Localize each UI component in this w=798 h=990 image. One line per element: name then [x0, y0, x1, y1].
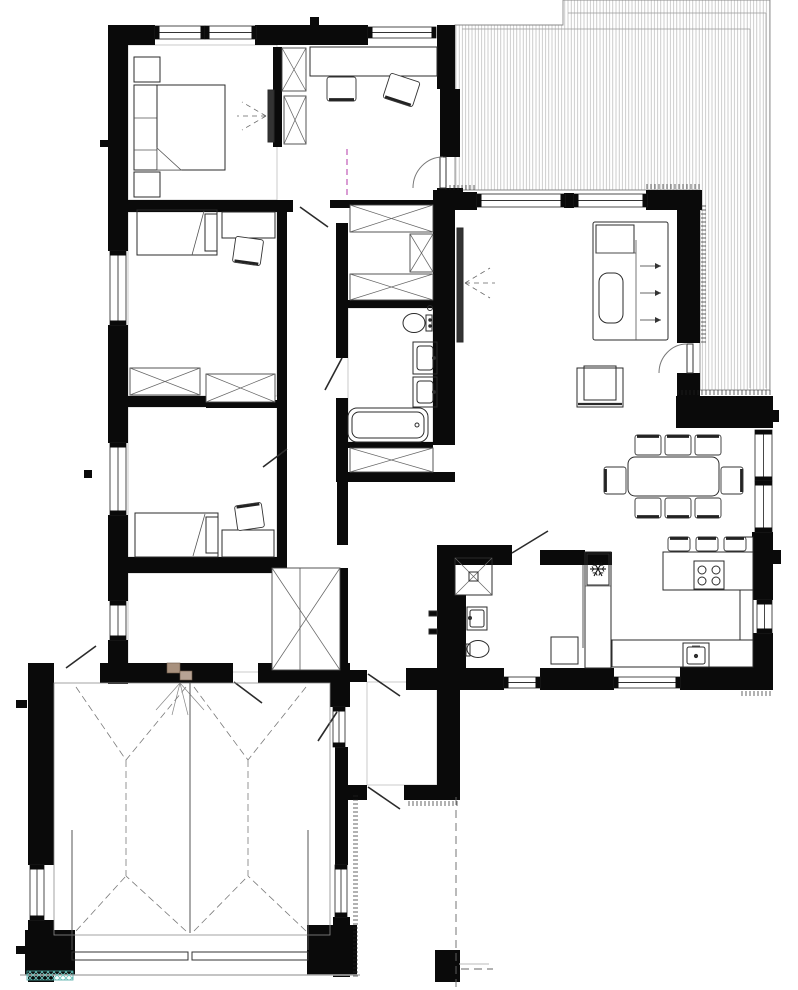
bathroom [417, 381, 433, 403]
toilet [403, 314, 425, 333]
window-jamb [335, 865, 347, 870]
dining-chair [695, 435, 721, 455]
door-leaf [234, 682, 262, 703]
window [205, 26, 256, 39]
wall [335, 747, 348, 865]
wall [28, 815, 54, 865]
bathroom [429, 325, 431, 327]
dining-chair [721, 467, 743, 494]
dining-chair [635, 435, 661, 455]
roof-hip [194, 876, 248, 931]
window-jamb [477, 194, 482, 207]
garage-door [72, 952, 188, 960]
door-leaf [512, 531, 548, 553]
bathroom [426, 315, 432, 331]
hall [272, 568, 340, 670]
door-leaf [368, 787, 400, 809]
desk [222, 530, 274, 557]
wall [108, 325, 128, 443]
bedroom-3-outline [128, 407, 277, 557]
tv-rays [465, 268, 490, 283]
window [335, 865, 347, 917]
tv-rays [242, 116, 266, 130]
wall [277, 472, 287, 573]
wall [336, 300, 437, 308]
bathroom-outline [348, 308, 433, 442]
living-room [457, 222, 668, 407]
wall [336, 398, 348, 460]
window-jamb [205, 26, 210, 39]
wall [540, 550, 585, 565]
window [477, 194, 565, 207]
wall [677, 205, 700, 343]
wall [336, 460, 348, 474]
tv-rays [242, 102, 266, 116]
dining-chair [695, 498, 721, 518]
living-room [655, 263, 661, 269]
bathroom [348, 306, 437, 443]
roof-hip [248, 876, 306, 931]
wall [337, 472, 348, 545]
island [663, 552, 753, 590]
wall [406, 668, 460, 690]
pillow [205, 214, 217, 251]
window-jamb [755, 477, 772, 482]
desk-chair [232, 236, 263, 266]
dining-chair [635, 498, 661, 518]
window-jamb [333, 707, 345, 712]
desk [222, 212, 275, 238]
window-jamb [201, 26, 206, 39]
roof-hip [76, 687, 126, 760]
bathroom [415, 423, 419, 427]
fridge-snowflake-icon [599, 573, 600, 576]
desk [310, 47, 437, 76]
window-jamb [30, 916, 44, 921]
wall [108, 25, 155, 45]
office [310, 47, 437, 107]
garage-interior [54, 683, 330, 935]
wall [676, 396, 773, 428]
vestibule-outline [367, 682, 437, 785]
window-jamb [757, 600, 772, 605]
bedroom-2 [192, 211, 204, 255]
window [504, 677, 540, 688]
wall [333, 917, 350, 977]
dining-chair [665, 498, 691, 518]
wall [564, 193, 574, 208]
plan-root [16, 0, 781, 988]
wall [100, 663, 233, 683]
wall [108, 515, 128, 601]
wall [437, 25, 455, 89]
window-jamb [643, 194, 648, 207]
window [368, 27, 436, 38]
window-jamb [755, 430, 772, 435]
dining-chair [665, 435, 691, 455]
wall [100, 140, 109, 147]
window [757, 600, 772, 633]
fridge-snowflake-icon [596, 573, 597, 576]
window [574, 194, 647, 207]
bar-stool [696, 537, 718, 551]
living-room [655, 317, 661, 323]
pillow [206, 517, 218, 553]
window-jamb [252, 26, 257, 39]
window [110, 251, 126, 325]
dining-chair [635, 498, 661, 518]
dining-chair [665, 498, 691, 518]
wall [340, 568, 348, 672]
dining-chair [665, 435, 691, 455]
wall [455, 545, 512, 565]
dining-chair [604, 467, 626, 494]
terrace-door-leaf [440, 157, 446, 188]
coffee-table [599, 273, 623, 323]
garage-door [192, 952, 308, 960]
wall [28, 663, 54, 815]
door-leaf [66, 646, 96, 668]
entry-bathroom [469, 617, 472, 620]
wall [680, 665, 773, 690]
window-jamb [110, 636, 126, 641]
window [110, 601, 126, 640]
living-room [584, 366, 616, 400]
blanket-fold [157, 148, 181, 170]
roof-hip [248, 687, 306, 760]
bathroom [417, 346, 433, 370]
bathtub [348, 408, 428, 442]
wall [128, 557, 278, 573]
door-leaf [368, 674, 400, 696]
window [333, 707, 345, 747]
window [155, 26, 205, 39]
wall [336, 223, 348, 303]
wall [345, 785, 367, 800]
dining-chair [635, 435, 661, 455]
storage-closets [350, 205, 433, 472]
bathroom [352, 412, 424, 438]
window-jamb [335, 913, 347, 918]
floor-plan-svg [0, 0, 798, 990]
wall [277, 212, 287, 472]
bathroom [433, 357, 436, 360]
window-jamb [110, 443, 126, 448]
dining-chair [695, 498, 721, 518]
wall [433, 190, 455, 302]
floor-plan-canvas [0, 0, 798, 990]
window-jamb [757, 629, 772, 634]
wall [437, 690, 460, 800]
window-jamb [504, 677, 509, 688]
dining-table [628, 457, 719, 496]
door-leaf [325, 358, 342, 390]
wall [16, 946, 27, 954]
wall [84, 470, 92, 478]
bathroom [433, 391, 436, 394]
washing-machine [551, 637, 578, 664]
roof-hip [126, 687, 186, 760]
wall [677, 373, 700, 398]
mudroom [551, 552, 611, 668]
wall [752, 532, 773, 600]
window-jamb [110, 321, 126, 326]
wall [16, 700, 27, 708]
window [110, 443, 126, 515]
wall [255, 25, 368, 45]
dining [604, 435, 743, 518]
window-jamb [368, 27, 373, 38]
kitchen [694, 654, 697, 657]
wall [310, 17, 319, 26]
tv [457, 228, 463, 342]
window-jamb [333, 743, 345, 748]
headboard [134, 85, 157, 170]
wall [540, 668, 614, 690]
nightstand [134, 57, 160, 82]
window-jamb [755, 481, 772, 486]
window [614, 677, 680, 688]
bedroom-3 [193, 514, 205, 556]
garage-door-panel [167, 663, 180, 673]
wall [336, 472, 455, 482]
window-jamb [432, 27, 437, 38]
wall [437, 545, 455, 668]
terrace-door-leaf [687, 344, 693, 373]
wall [460, 668, 504, 690]
tv [268, 90, 274, 142]
door-swing-arc [413, 157, 443, 188]
window-jamb [155, 26, 160, 39]
wall [25, 930, 75, 975]
window-jamb [536, 677, 541, 688]
bathroom [429, 319, 431, 321]
living-room [596, 225, 634, 253]
roof-hip [126, 876, 186, 931]
window [30, 865, 44, 920]
wall [773, 410, 779, 422]
bar-stool [668, 537, 690, 551]
desk-chair [327, 77, 356, 101]
bedroom-2 [137, 210, 275, 266]
water-tap [429, 611, 437, 616]
dining-chair [721, 467, 743, 494]
desk-chair [327, 77, 356, 101]
wall [440, 89, 460, 157]
dining-chair [695, 435, 721, 455]
tv-rays [465, 283, 490, 298]
wall [453, 595, 466, 668]
window-jamb [110, 511, 126, 516]
door-swing-arc [659, 344, 687, 373]
porch [456, 797, 493, 988]
window-jamb [755, 528, 772, 533]
window [755, 481, 772, 532]
wall [773, 550, 781, 564]
garage-door-panel [180, 671, 192, 680]
wall [108, 25, 128, 251]
living-room [655, 290, 661, 296]
kitchen [612, 537, 753, 667]
wall [336, 308, 348, 358]
drain-strip [27, 971, 73, 980]
window-jamb [561, 194, 566, 207]
window-jamb [614, 677, 619, 688]
window [755, 430, 772, 481]
desk-chair [234, 502, 264, 531]
wall [404, 785, 460, 800]
nightstand [134, 172, 160, 197]
window-jamb [574, 194, 579, 207]
wall [345, 670, 367, 682]
roof-hip [194, 687, 248, 760]
roof-hip [76, 876, 126, 931]
window-jamb [30, 865, 44, 870]
window-jamb [110, 251, 126, 256]
entry-bathroom [470, 610, 484, 627]
wall [108, 396, 208, 407]
door-leaf [300, 207, 328, 227]
window-jamb [110, 601, 126, 606]
bar-stool [724, 537, 746, 551]
dining-chair [604, 467, 626, 494]
water-tap [429, 629, 437, 634]
wall [348, 442, 433, 448]
desk-chair [383, 73, 421, 107]
window-jamb [676, 677, 681, 688]
